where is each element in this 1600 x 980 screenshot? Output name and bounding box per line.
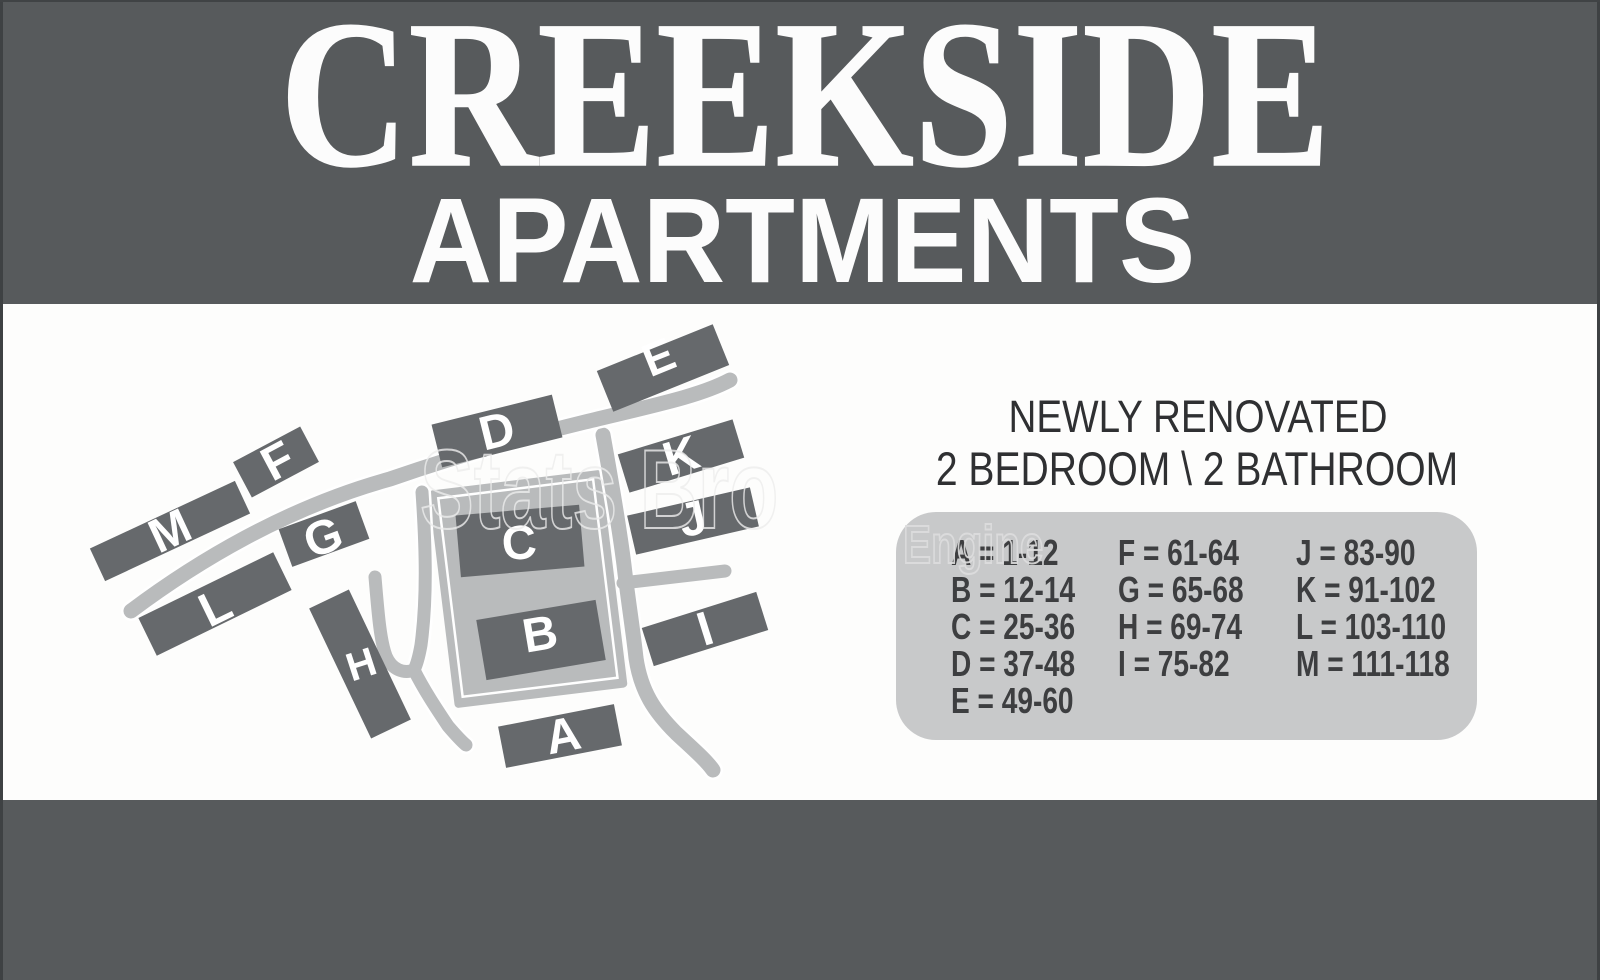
svg-text:C: C [500,516,539,572]
